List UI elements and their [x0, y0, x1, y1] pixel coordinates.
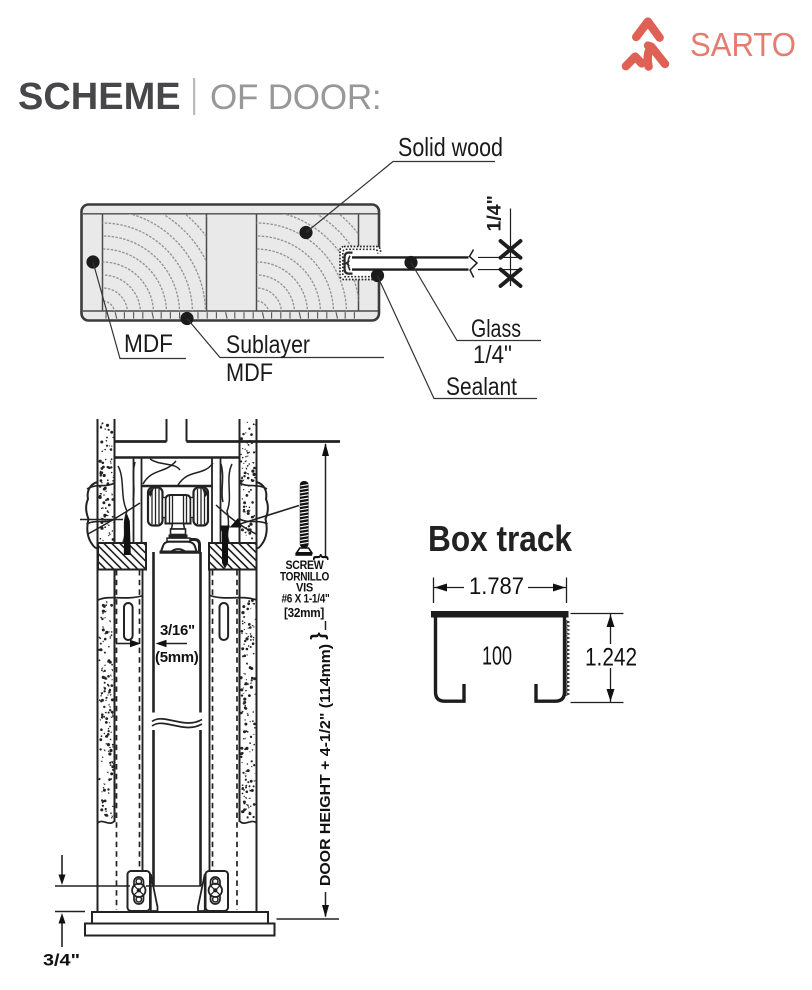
- svg-text:Sublayer: Sublayer: [226, 331, 310, 359]
- svg-text:#6 X 1-1/4": #6 X 1-1/4": [282, 594, 330, 606]
- svg-text:SCREW: SCREW: [286, 560, 324, 572]
- svg-text:SARTO: SARTO: [690, 26, 796, 63]
- svg-text:MDF: MDF: [124, 330, 173, 358]
- svg-text:Glass: Glass: [471, 315, 521, 343]
- svg-text:1/4": 1/4": [484, 195, 506, 231]
- svg-text:DOOR HEIGHT + 4-1/2" (114mm): DOOR HEIGHT + 4-1/2" (114mm): [317, 644, 334, 886]
- svg-text:}: }: [308, 632, 329, 640]
- svg-text:3/16": 3/16": [160, 622, 195, 639]
- svg-text:Sealant: Sealant: [446, 373, 517, 401]
- svg-text:1/4": 1/4": [473, 341, 512, 369]
- svg-text:SCHEME: SCHEME: [18, 76, 181, 118]
- svg-text:3/4": 3/4": [43, 951, 80, 970]
- svg-text:1.242: 1.242: [585, 644, 637, 672]
- svg-text:100: 100: [482, 641, 512, 671]
- svg-text:1.787: 1.787: [469, 573, 524, 600]
- svg-text:Solid wood: Solid wood: [398, 132, 503, 162]
- svg-text:OF DOOR:: OF DOOR:: [210, 78, 381, 117]
- svg-text:(5mm): (5mm): [155, 649, 199, 666]
- svg-text:[32mm]: [32mm]: [284, 606, 324, 620]
- svg-text:MDF: MDF: [226, 359, 273, 387]
- svg-text:Box track: Box track: [428, 518, 573, 559]
